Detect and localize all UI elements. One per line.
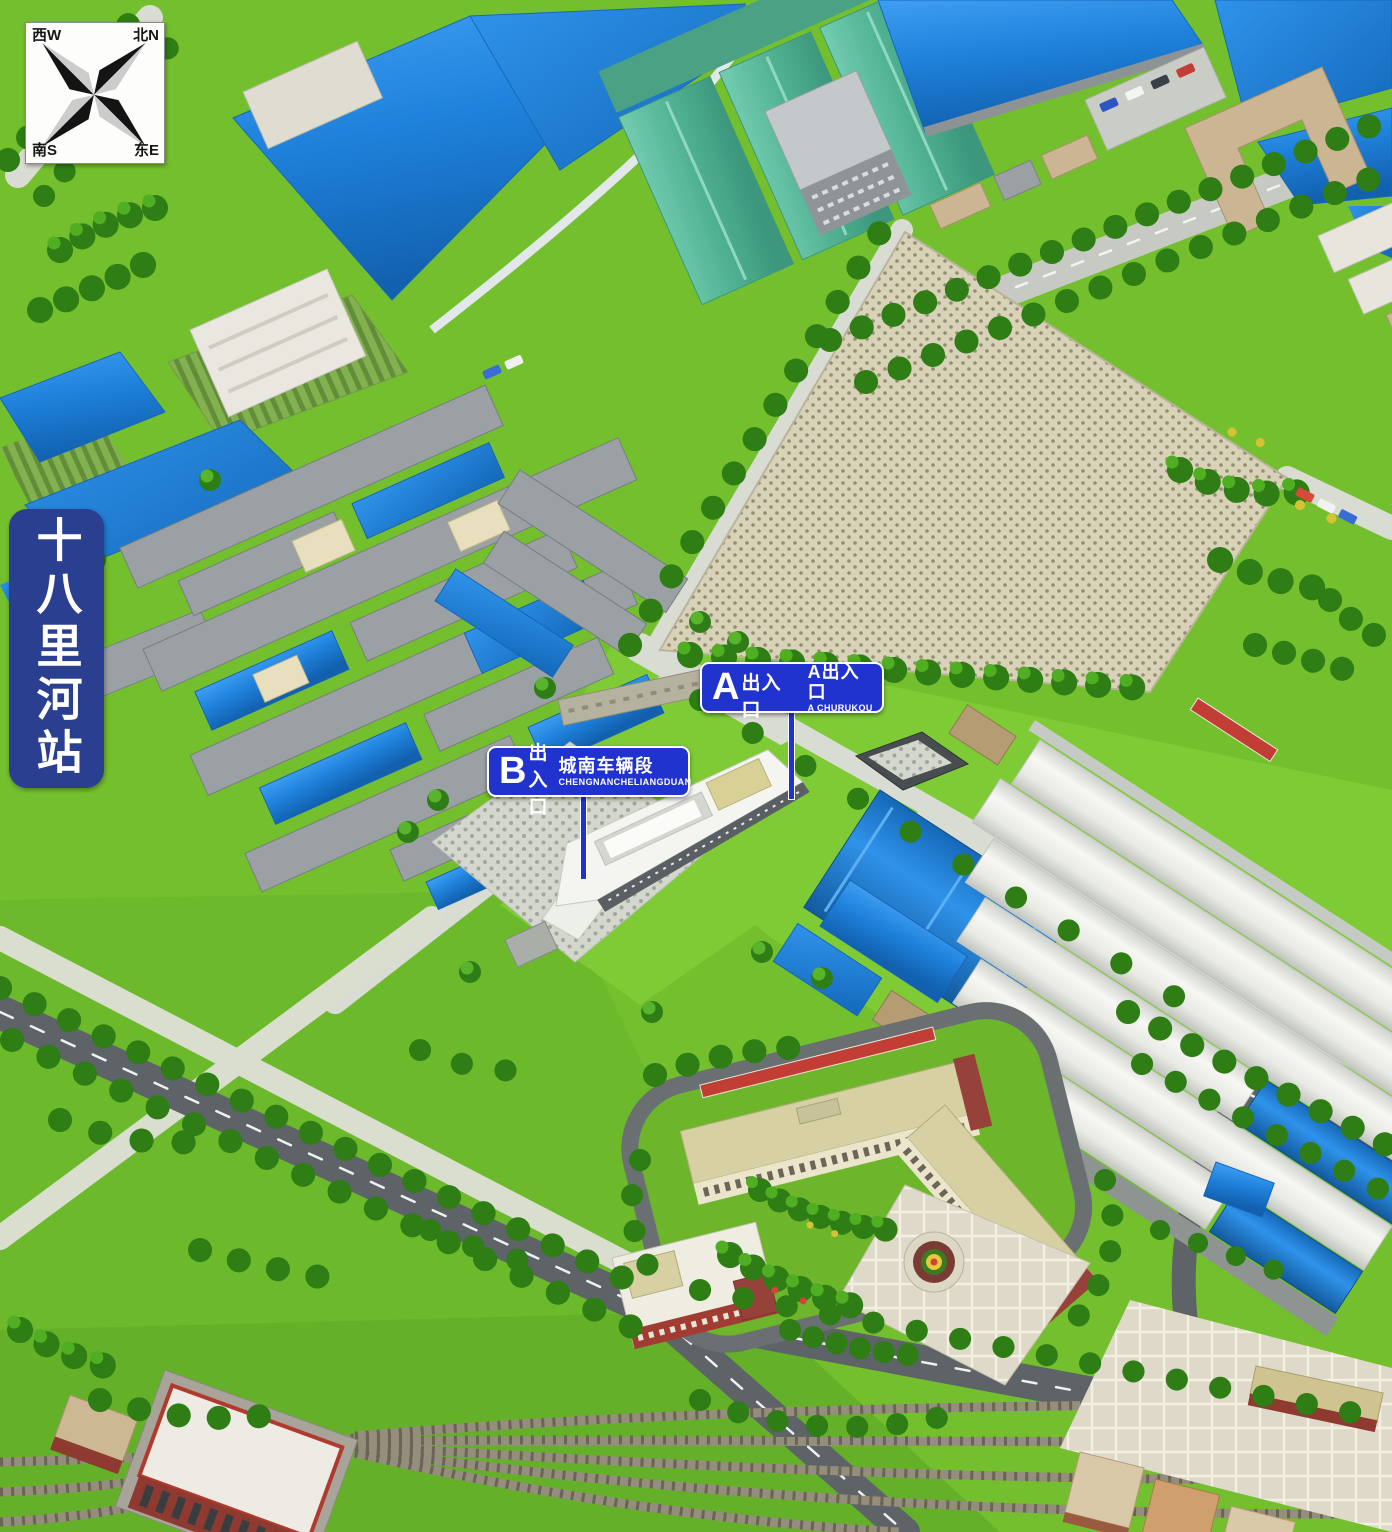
entrance-label-a[interactable]: A 出入口 A出入口 A CHURUKOU xyxy=(700,662,884,713)
entrance-a-leader-line xyxy=(789,711,794,799)
entrance-a-letter: A xyxy=(712,669,739,705)
entrance-b-suffix: 出入口 xyxy=(528,738,548,819)
entrance-b-letter: B xyxy=(499,753,526,789)
entrance-b-pinyin: CHENGNANCHELIANGDUAN xyxy=(558,777,691,787)
entrance-a-suffix: 出入口 xyxy=(741,668,797,722)
compass-west-label: 西W xyxy=(32,28,61,43)
fountain xyxy=(904,1232,964,1292)
map-illustration xyxy=(0,0,1392,1532)
compass-north-label: 北N xyxy=(133,28,159,43)
entrance-label-b[interactable]: B 出入口 城南车辆段 CHENGNANCHELIANGDUAN xyxy=(487,746,690,797)
entrance-a-pinyin: A CHURUKOU xyxy=(808,703,874,713)
station-3d-map: 西W 北N 南S 东E 十八里河站 A 出入口 A出入口 A CHURUKOU … xyxy=(0,0,1392,1532)
compass-east-label: 东E xyxy=(134,143,159,158)
station-name-tag: 十八里河站 xyxy=(9,509,104,788)
entrance-b-destination: 城南车辆段 xyxy=(558,756,691,776)
entrance-b-leader-line xyxy=(581,795,586,879)
compass-rose: 西W 北N 南S 东E xyxy=(25,22,165,164)
compass-south-label: 南S xyxy=(32,143,57,158)
entrance-a-destination: A出入口 xyxy=(808,662,874,702)
